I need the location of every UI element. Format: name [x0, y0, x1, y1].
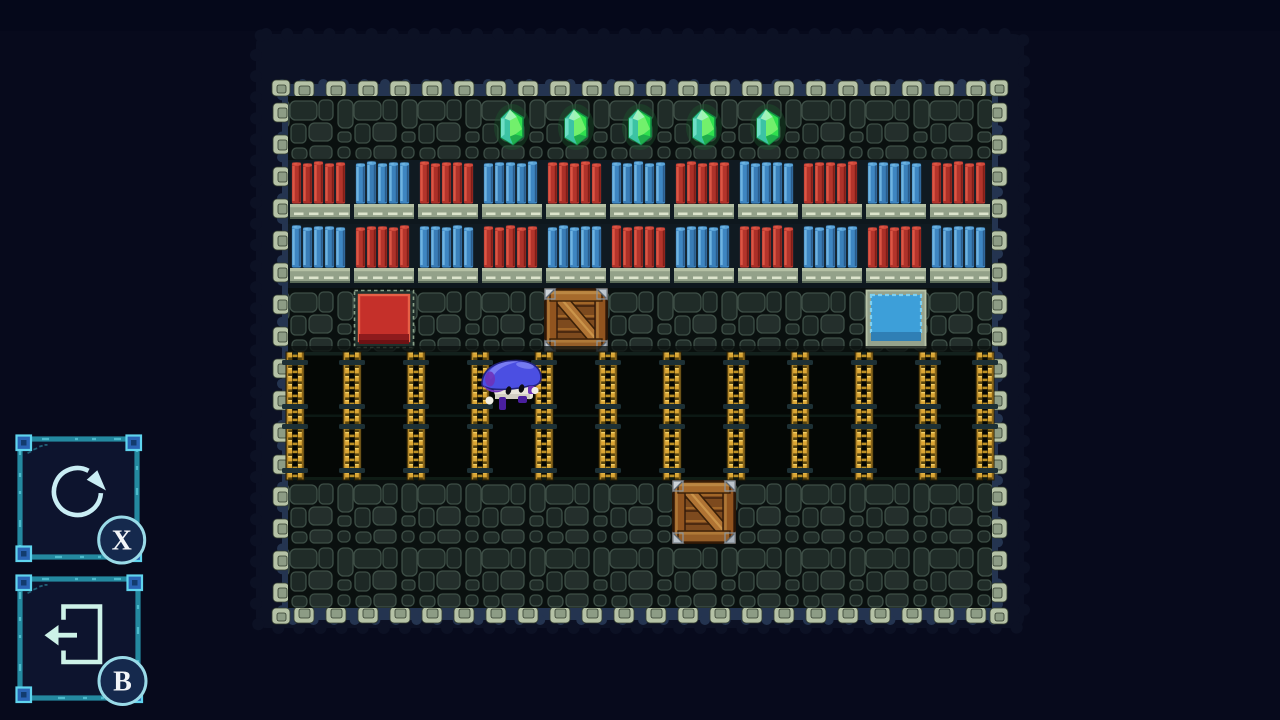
svg-text:X: X — [112, 526, 132, 557]
svg-text:B: B — [113, 667, 132, 698]
